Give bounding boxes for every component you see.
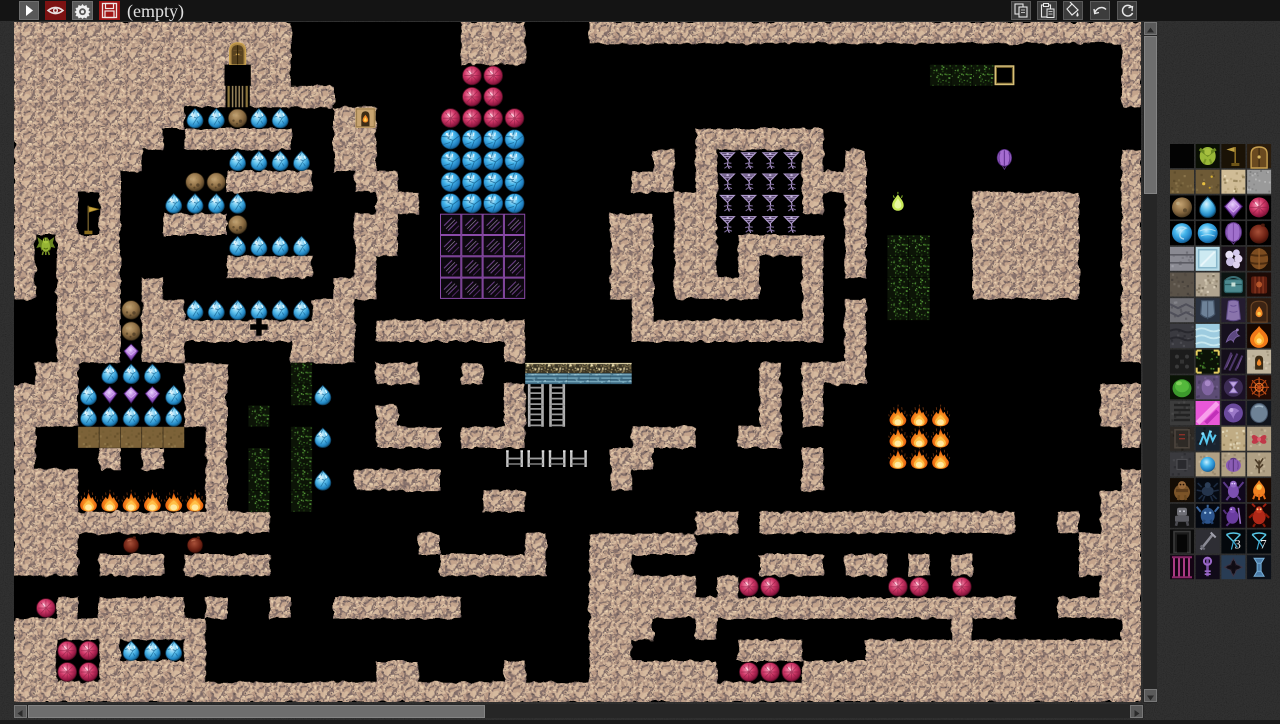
svg-text:3: 3 bbox=[1234, 537, 1241, 552]
svg-text:7: 7 bbox=[1260, 537, 1267, 552]
